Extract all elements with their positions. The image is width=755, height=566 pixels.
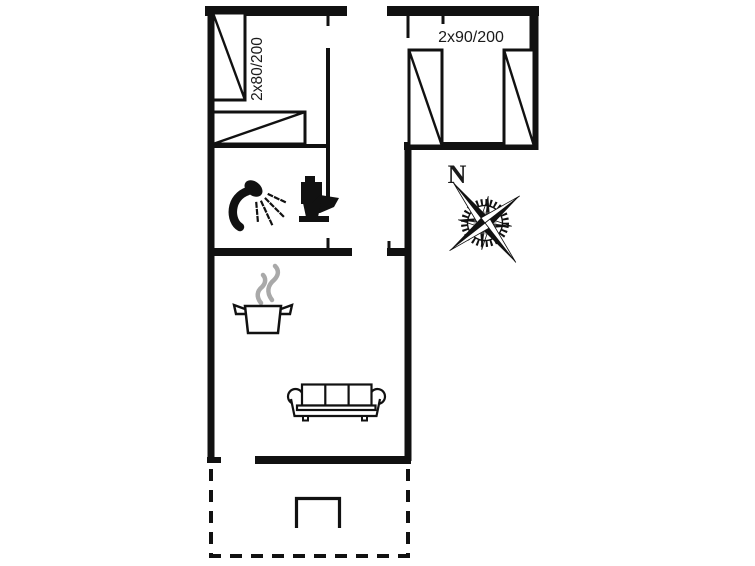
bed-right-2 (504, 50, 534, 146)
table-icon (297, 499, 340, 529)
bed-left-horizontal (213, 112, 305, 144)
compass-rose-icon (444, 182, 524, 262)
compass-diagonal-points (444, 182, 524, 262)
floor-plan-drawing (0, 0, 755, 566)
floor-plan: 2x80/200 2x90/200 N (0, 0, 755, 566)
toilet-icon (299, 176, 339, 222)
sofa-icon (288, 385, 385, 421)
steam-icon (258, 266, 278, 303)
bed-right-1 (409, 50, 442, 146)
shower-icon (233, 177, 286, 227)
shower-spray (256, 194, 286, 225)
bed-size-label-left: 2x80/200 (249, 37, 267, 101)
cooking-pot-icon (234, 266, 292, 333)
bed-left-vertical (213, 13, 245, 100)
north-label: N (448, 160, 467, 190)
bed-size-label-right: 2x90/200 (438, 29, 504, 47)
terrace-outline (209, 469, 412, 557)
